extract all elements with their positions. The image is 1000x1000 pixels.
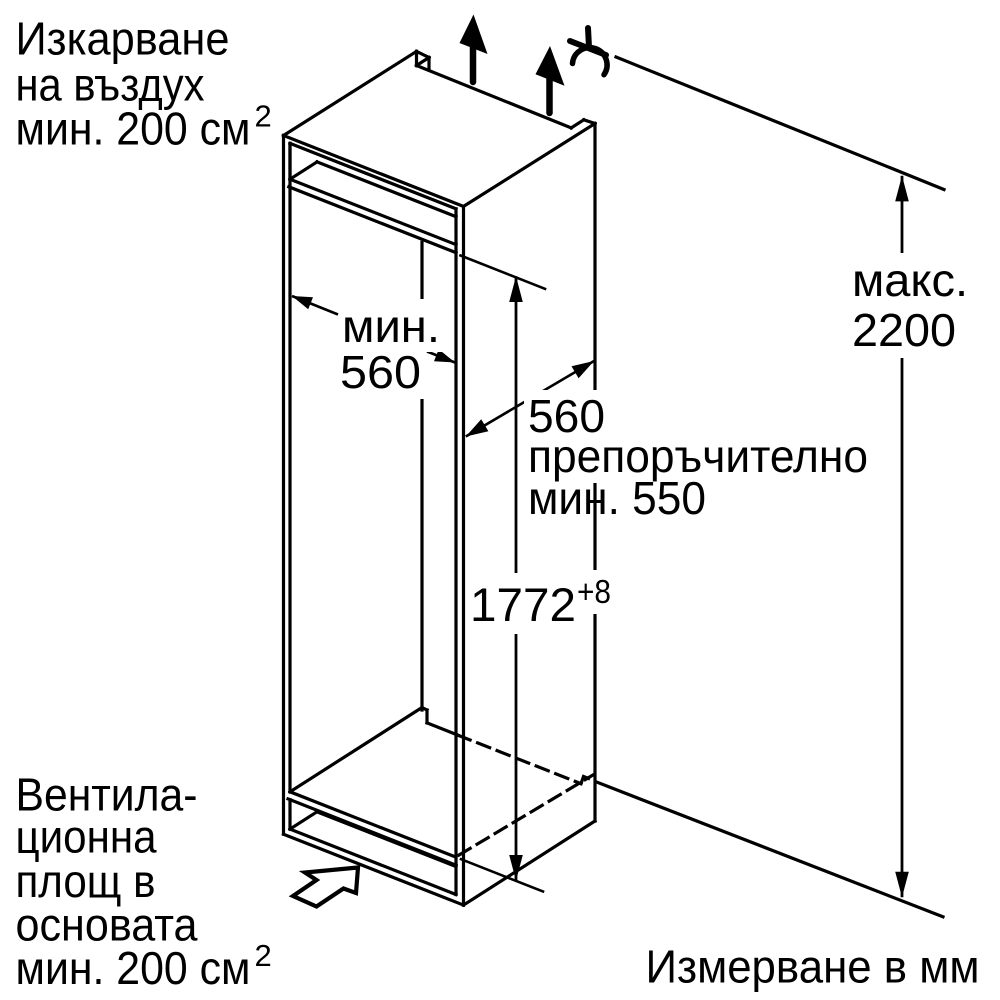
svg-text:Измерване в мм: Измерване в мм [646,940,980,992]
svg-text:+8: +8 [577,573,611,610]
svg-text:2: 2 [255,938,272,973]
svg-text:мин.: мин. [342,300,440,352]
svg-text:1772: 1772 [470,578,576,631]
svg-text:макс.: макс. [852,254,968,306]
svg-text:мин. 550: мин. 550 [528,472,706,524]
svg-text:мин. 200 см: мин. 200 см [16,942,251,994]
svg-text:Изкарване: Изкарване [16,13,230,65]
svg-text:560: 560 [340,346,421,398]
svg-text:мин. 200 см: мин. 200 см [16,103,251,155]
svg-text:2200: 2200 [852,304,956,356]
svg-text:2: 2 [255,99,272,134]
